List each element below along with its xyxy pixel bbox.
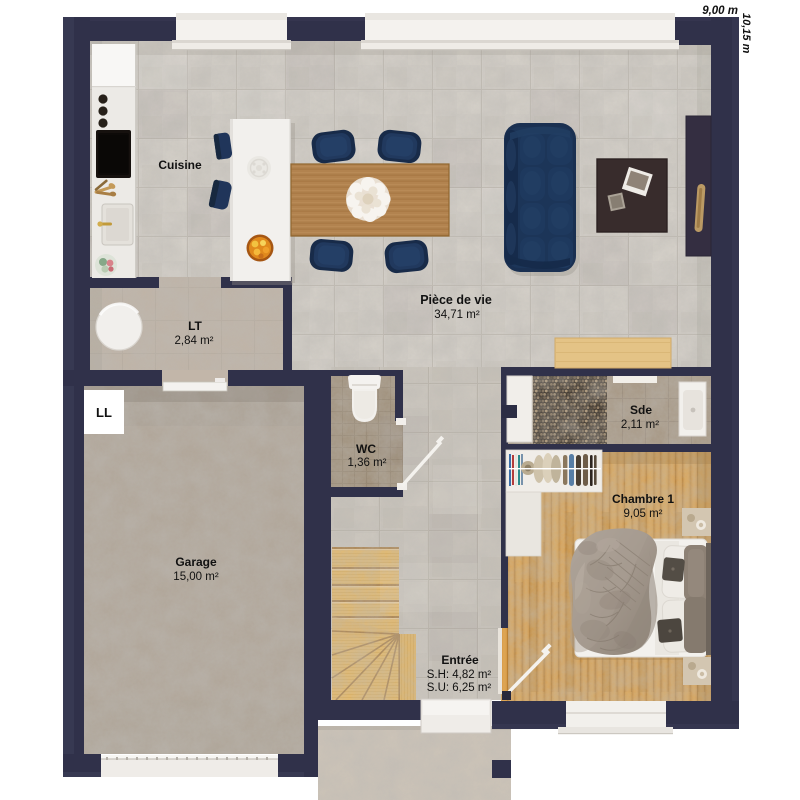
svg-text:34,71 m²: 34,71 m² — [434, 309, 480, 321]
svg-text:9,00 m: 9,00 m — [702, 5, 738, 17]
svg-text:Garage: Garage — [175, 555, 217, 569]
svg-text:WC: WC — [356, 442, 376, 456]
svg-text:Pièce de vie: Pièce de vie — [420, 293, 492, 307]
svg-text:Entrée: Entrée — [441, 653, 479, 667]
svg-text:9,05 m²: 9,05 m² — [624, 508, 663, 520]
svg-text:S.H: 4,82 m²: S.H: 4,82 m² — [427, 669, 492, 681]
svg-text:S.U: 6,25 m²: S.U: 6,25 m² — [427, 682, 492, 694]
svg-text:LL: LL — [96, 405, 112, 420]
svg-text:2,11 m²: 2,11 m² — [621, 419, 659, 431]
svg-text:2,84 m²: 2,84 m² — [175, 335, 214, 347]
svg-text:Sde: Sde — [630, 403, 652, 417]
svg-text:10,15 m: 10,15 m — [740, 13, 752, 54]
svg-text:LT: LT — [188, 319, 202, 333]
svg-text:15,00 m²: 15,00 m² — [173, 571, 219, 583]
svg-text:Cuisine: Cuisine — [158, 158, 202, 172]
svg-text:1,36 m²: 1,36 m² — [348, 457, 387, 469]
svg-text:Chambre 1: Chambre 1 — [612, 492, 674, 506]
